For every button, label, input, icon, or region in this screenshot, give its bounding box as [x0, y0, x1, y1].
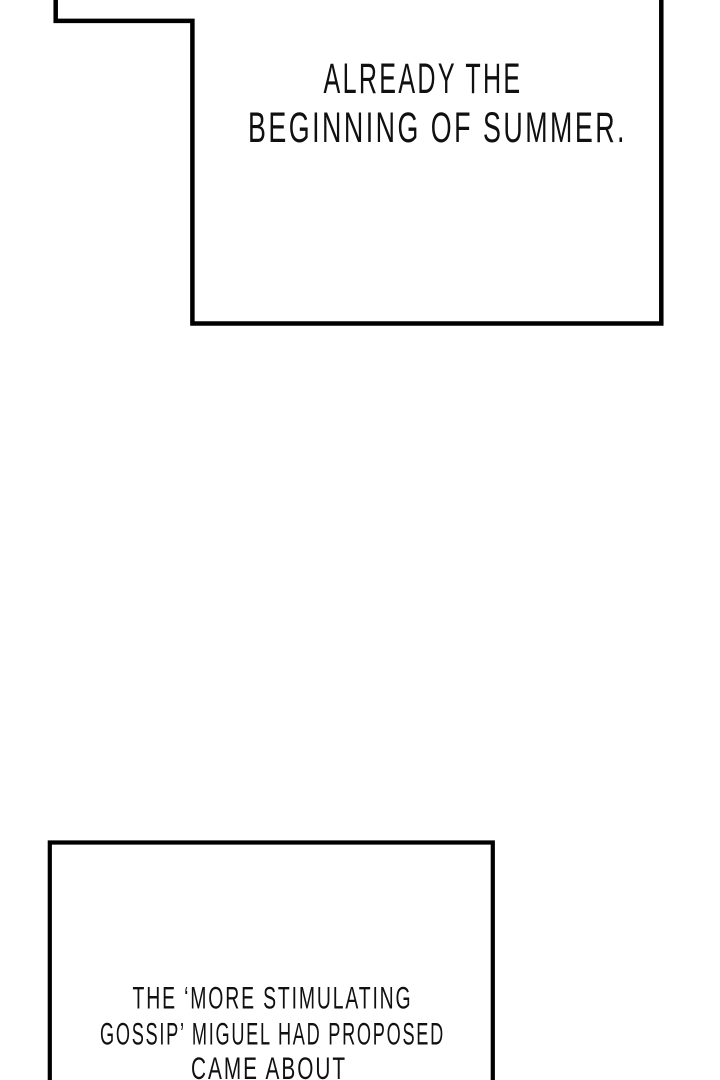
- svg-text:ALREADY THE: ALREADY THE: [324, 55, 523, 103]
- svg-text:CAME ABOUT: CAME ABOUT: [191, 1050, 347, 1080]
- svg-text:THE ‘MORE STIMULATING: THE ‘MORE STIMULATING: [133, 980, 413, 1016]
- svg-text:BEGINNING OF SUMMER.: BEGINNING OF SUMMER.: [248, 104, 627, 152]
- svg-text:GOSSIP’ MIGUEL HAD PROPOSED: GOSSIP’ MIGUEL HAD PROPOSED: [100, 1016, 445, 1052]
